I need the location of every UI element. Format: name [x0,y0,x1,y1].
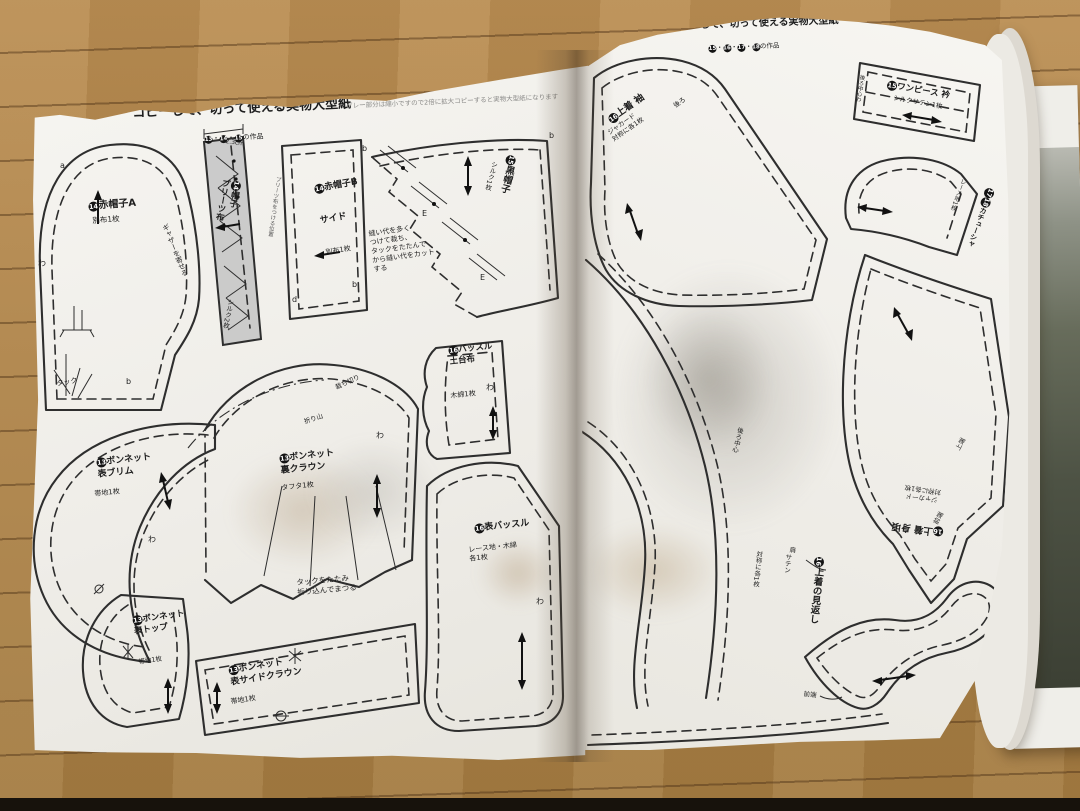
work-number-badge: 13 [204,136,212,144]
fold-mark: わ [536,597,544,606]
corner-letter: b [549,131,554,140]
corner-letter: b [126,377,131,386]
piece-material: 対称に各1枚 [740,550,763,690]
piece-label-jacket-bodice: 16上着 身頃 ジャカード 対称に各1枚 [868,458,972,562]
work-number-badge: 18 [752,44,760,52]
corner-letter: d [292,295,297,304]
piece-name: 16上着 身頃 [871,516,964,541]
work-number-badge: 17 [737,44,745,52]
pleat-letter: E [422,209,427,218]
pattern-piece-front-bustle: わ [425,463,563,731]
piece-name: 1718カチューシャ [959,187,996,266]
right-pattern-page: コピーして、切って使える実物大型紙 15・16・17・18の作品 16上着 袖 … [558,8,1010,750]
corner-letter: a [60,161,65,170]
piece-material: ジャカード 対称に各1枚 [876,479,969,509]
works-list: 15・16・17・18の作品 [708,34,780,54]
works-suffix: の作品 [242,133,263,142]
photo-of-sewing-pattern-book: a わ b b d b [0,0,1080,811]
piece-name: 赤帽子A [98,198,136,212]
piece-name: 14赤帽子B [314,177,359,196]
shoulder-mark: 肩 [789,546,796,555]
work-number-badge: 16 [723,45,731,53]
fold-mark: わ [376,431,384,440]
piece-material: 別布1枚 [92,214,120,226]
piece-material: レース地1枚 [932,177,967,255]
piece-material: 別布1枚 [325,241,370,258]
piece-material: サテン [769,553,792,693]
piece-number-badge: 16 [932,526,943,537]
pattern-piece-jacket-sleeve [591,58,827,306]
piece-subname: サイド [319,209,364,228]
work-number-badge: 15 [708,45,716,53]
corner-letter: b [362,144,367,153]
pattern-piece-red-hat-a: a わ b [38,144,200,410]
fold-mark: わ [148,535,156,544]
pleat-letter: E [480,273,485,282]
piece-name: 16上着の見返し [798,556,825,697]
fold-mark: わ [38,259,46,268]
works-suffix: の作品 [760,42,780,51]
piece-label-jacket-facing: 16上着の見返し サテン 対称に各1枚 [719,548,845,699]
piece-label-bustle-base: 16バッスル 土台布 [448,341,494,368]
pattern-piece-curve [586,254,728,700]
fold-mark: わ [486,383,494,392]
seam-allowance-note: 縫い代を多く つけて裁ち、 タックをたたんで から縫い代をカット する [368,221,437,275]
table-edge-shadow [0,798,1080,811]
corner-letter: b [352,280,357,289]
front-edge-mark: 前端 [803,690,817,700]
left-pattern-page: a わ b b d b [28,58,588,760]
pattern-piece-black-hat: E E b [372,131,558,317]
piece-number-badge: 14 [88,201,99,212]
